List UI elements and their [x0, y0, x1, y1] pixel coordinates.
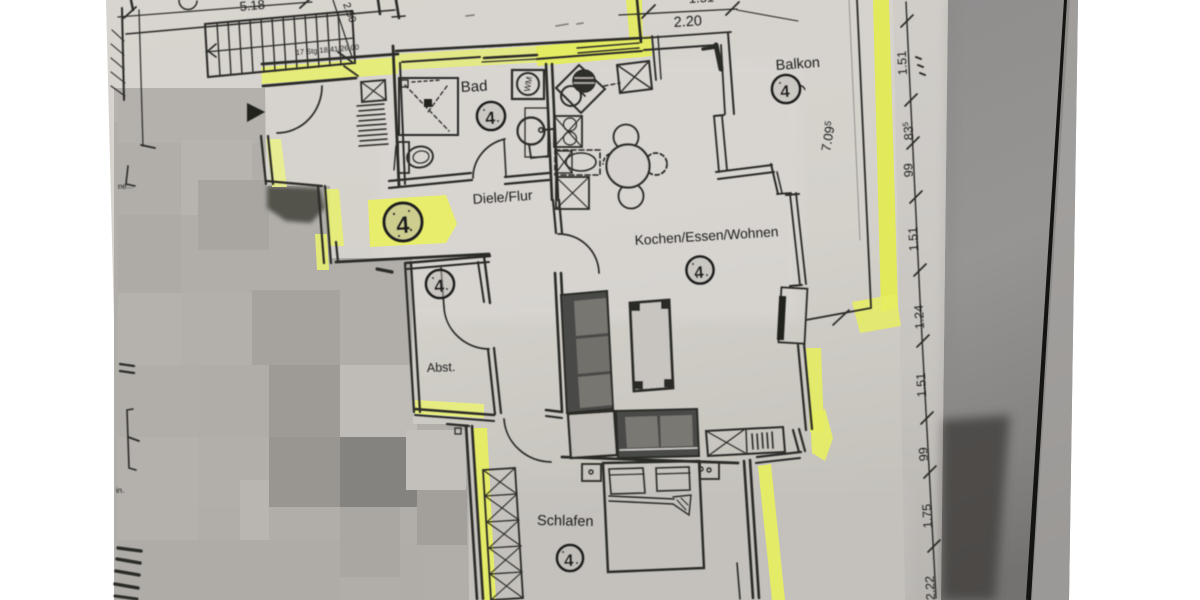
svg-text:2.22: 2.22 — [923, 575, 938, 600]
svg-text:1.75: 1.75 — [920, 503, 935, 528]
svg-text:4: 4 — [395, 212, 411, 240]
svg-text:4: 4 — [484, 108, 495, 129]
svg-text:2.20: 2.20 — [673, 13, 702, 31]
svg-text:5.18: 5.18 — [239, 0, 266, 14]
svg-text:4: 4 — [433, 276, 444, 297]
svg-text:4: 4 — [564, 551, 575, 570]
svg-text:Bad: Bad — [460, 78, 488, 96]
svg-text:99: 99 — [901, 163, 916, 178]
svg-text:1.24: 1.24 — [912, 304, 927, 329]
svg-text:4: 4 — [780, 82, 791, 102]
svg-text:1.51: 1.51 — [895, 50, 910, 75]
svg-text:Balkon: Balkon — [775, 55, 820, 74]
svg-text:99: 99 — [916, 447, 931, 462]
svg-text:Schlafen: Schlafen — [537, 513, 594, 530]
svg-text:in.: in. — [116, 486, 125, 495]
svg-text:4: 4 — [694, 263, 705, 283]
svg-text:1.51: 1.51 — [906, 226, 921, 251]
svg-text:ne...: ne... — [118, 181, 134, 191]
svg-text:1.51: 1.51 — [914, 372, 929, 397]
svg-text:Abst.: Abst. — [427, 360, 456, 375]
